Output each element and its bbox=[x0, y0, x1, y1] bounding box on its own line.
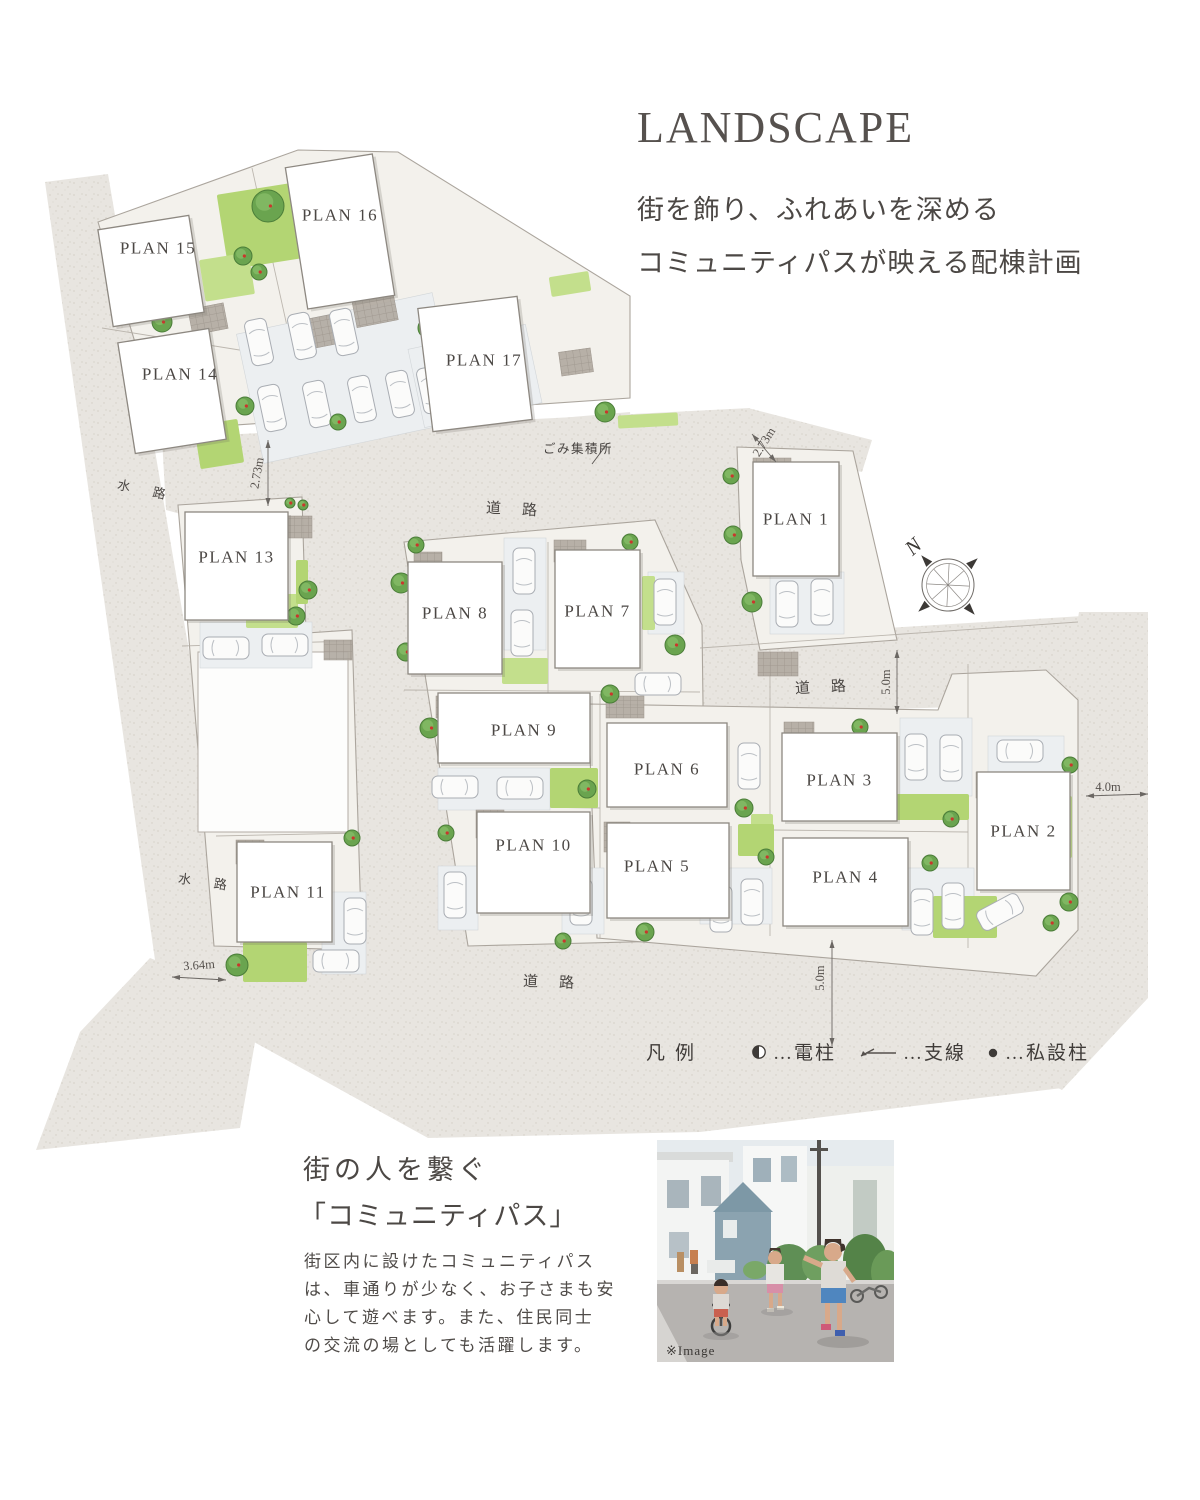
dimension-label: 5.0m bbox=[813, 965, 827, 991]
tree-center-dot bbox=[744, 806, 747, 809]
tree bbox=[252, 190, 284, 222]
tree-center-dot bbox=[1051, 921, 1054, 924]
car bbox=[262, 634, 308, 656]
grass-patch bbox=[243, 942, 307, 982]
car bbox=[738, 743, 760, 789]
car bbox=[997, 740, 1043, 762]
plan-building bbox=[118, 328, 230, 456]
tree-center-dot bbox=[733, 533, 736, 536]
tree-center-dot bbox=[338, 420, 341, 423]
car-body bbox=[344, 898, 366, 944]
tree bbox=[724, 526, 742, 544]
tree bbox=[420, 718, 440, 738]
private-pole-icon bbox=[986, 1045, 1000, 1059]
legend-label: …電柱 bbox=[773, 1038, 836, 1065]
car bbox=[940, 735, 962, 781]
community-body-line: は、車通りが少なく、お子さまも安 bbox=[304, 1276, 616, 1304]
tree bbox=[723, 468, 739, 484]
car bbox=[635, 673, 681, 695]
car bbox=[432, 776, 478, 798]
tree bbox=[285, 498, 295, 508]
tree-center-dot bbox=[675, 643, 678, 646]
car-body bbox=[905, 734, 927, 780]
tree bbox=[601, 685, 619, 703]
car bbox=[444, 872, 466, 918]
tree bbox=[665, 635, 685, 655]
tree-center-dot bbox=[587, 787, 590, 790]
legend-item-private-pole: …私設柱 bbox=[986, 1038, 1089, 1065]
building-footprint bbox=[98, 215, 204, 326]
tree-center-dot bbox=[645, 930, 648, 933]
car bbox=[776, 581, 798, 627]
tree bbox=[1043, 915, 1059, 931]
plan-label: PLAN 17 bbox=[446, 351, 522, 370]
plan-label: PLAN 10 bbox=[495, 836, 571, 855]
road-label: 道 路 bbox=[523, 973, 578, 992]
car-body bbox=[942, 883, 964, 929]
tree bbox=[1060, 893, 1078, 911]
tree bbox=[943, 811, 959, 827]
plan-building bbox=[185, 512, 291, 623]
plan-label: PLAN 13 bbox=[198, 548, 274, 567]
tree-center-dot bbox=[752, 600, 755, 603]
tree-center-dot bbox=[269, 204, 272, 207]
tree bbox=[1062, 757, 1078, 773]
car-body bbox=[940, 735, 962, 781]
tree bbox=[742, 592, 762, 612]
plan-label: PLAN 2 bbox=[990, 822, 1056, 841]
dimension-label: 3.64m bbox=[183, 957, 216, 973]
legend-label: …私設柱 bbox=[1005, 1038, 1089, 1065]
tree bbox=[298, 500, 308, 510]
community-heading-line2: 「コミュニティパス」 bbox=[299, 1194, 577, 1233]
plan-label: PLAN 16 bbox=[302, 206, 378, 225]
photo-illustration bbox=[657, 1140, 894, 1362]
plan-label: PLAN 9 bbox=[491, 721, 557, 740]
car bbox=[942, 883, 964, 929]
car bbox=[741, 879, 763, 925]
car-body bbox=[776, 581, 798, 627]
building-footprint bbox=[477, 812, 590, 913]
car bbox=[203, 637, 249, 659]
legend-label: …支線 bbox=[903, 1038, 966, 1065]
car-body bbox=[497, 777, 543, 799]
tree bbox=[236, 397, 254, 415]
tree bbox=[299, 581, 317, 599]
tree-center-dot bbox=[296, 614, 299, 617]
plan-label: PLAN 6 bbox=[634, 760, 700, 779]
car-body bbox=[911, 889, 933, 935]
tree-highlight bbox=[256, 193, 274, 211]
plan-label: PLAN 8 bbox=[422, 604, 488, 623]
tree-center-dot bbox=[605, 410, 608, 413]
tree-center-dot bbox=[951, 817, 954, 820]
tree-center-dot bbox=[1069, 900, 1072, 903]
tree-center-dot bbox=[416, 543, 419, 546]
plan-label: PLAN 14 bbox=[142, 365, 218, 384]
vacant-plot bbox=[198, 652, 348, 832]
community-body: 街区内に設けたコミュニティパス は、車通りが少なく、お子さまも安 心して遊べます… bbox=[304, 1248, 616, 1360]
car-body bbox=[313, 950, 359, 972]
tree-center-dot bbox=[308, 588, 311, 591]
tree bbox=[344, 830, 360, 846]
tree-center-dot bbox=[259, 270, 262, 273]
tree-center-dot bbox=[731, 474, 734, 477]
car bbox=[313, 950, 359, 972]
tree-center-dot bbox=[245, 404, 248, 407]
tree-center-dot bbox=[243, 254, 246, 257]
building-footprint bbox=[118, 328, 226, 453]
car-body bbox=[635, 673, 681, 695]
tree bbox=[330, 414, 346, 430]
tree bbox=[622, 534, 638, 550]
paving-pad bbox=[324, 640, 352, 660]
car bbox=[511, 610, 533, 656]
plan-label: PLAN 7 bbox=[564, 602, 630, 621]
tree-center-dot bbox=[430, 726, 433, 729]
tree bbox=[251, 264, 267, 280]
car-body bbox=[203, 637, 249, 659]
legend-item-utility-pole: …電柱 bbox=[750, 1038, 836, 1065]
car-body bbox=[511, 610, 533, 656]
car-body bbox=[738, 743, 760, 789]
tree bbox=[758, 849, 774, 865]
car-body bbox=[654, 579, 676, 625]
road-label: 道 路 bbox=[795, 678, 850, 698]
tree bbox=[595, 402, 615, 422]
tree bbox=[735, 799, 753, 817]
tree-center-dot bbox=[766, 855, 769, 858]
dimension-label: 4.0m bbox=[1095, 780, 1121, 794]
car-body bbox=[262, 634, 308, 656]
plan-label: PLAN 1 bbox=[763, 510, 829, 529]
community-photo: ※Image bbox=[657, 1140, 894, 1362]
plan-label: PLAN 15 bbox=[120, 239, 196, 258]
tree-center-dot bbox=[610, 692, 613, 695]
tree bbox=[226, 954, 248, 976]
compass: N bbox=[875, 511, 1004, 642]
tree-center-dot bbox=[930, 861, 933, 864]
tree-center-dot bbox=[860, 725, 863, 728]
paving-pad bbox=[558, 348, 593, 376]
legend-item-guy-wire: …支線 bbox=[858, 1038, 966, 1065]
car-body bbox=[444, 872, 466, 918]
community-heading-line1: 街の人を繋ぐ bbox=[303, 1148, 489, 1187]
photo-caption: ※Image bbox=[666, 1343, 715, 1359]
car bbox=[811, 579, 833, 625]
car-body bbox=[741, 879, 763, 925]
tree bbox=[578, 780, 596, 798]
tree bbox=[408, 537, 424, 553]
tree-center-dot bbox=[446, 831, 449, 834]
dimension-label: 5.0m bbox=[879, 669, 893, 695]
compass-arrowhead bbox=[966, 555, 980, 569]
grass-patch bbox=[502, 658, 548, 684]
tree bbox=[922, 855, 938, 871]
landscape-page: LANDSCAPE 街を飾り、ふれあいを深める コミュニティパスが映える配棟計画… bbox=[0, 0, 1200, 1500]
car-body bbox=[997, 740, 1043, 762]
grass-patch bbox=[642, 576, 655, 630]
tree bbox=[636, 923, 654, 941]
tree bbox=[438, 825, 454, 841]
tree-center-dot bbox=[237, 963, 240, 966]
paving-pad bbox=[758, 652, 798, 676]
car bbox=[905, 734, 927, 780]
tree-center-dot bbox=[401, 581, 404, 584]
utility-pole-icon bbox=[750, 1043, 768, 1061]
car bbox=[344, 898, 366, 944]
community-body-line: 心して遊べます。また、住民同士 bbox=[304, 1304, 616, 1332]
plan-label: PLAN 4 bbox=[812, 868, 878, 887]
car bbox=[497, 777, 543, 799]
guy-wire-icon bbox=[858, 1044, 898, 1060]
community-body-line: 街区内に設けたコミュニティパス bbox=[304, 1248, 616, 1276]
compass-arrowhead bbox=[916, 601, 930, 615]
road-label: 道 路 bbox=[486, 500, 541, 520]
car bbox=[911, 889, 933, 935]
community-body-line: の交流の場としても活躍します。 bbox=[304, 1332, 616, 1360]
plan-building bbox=[98, 215, 208, 330]
tree bbox=[555, 933, 571, 949]
tree-center-dot bbox=[630, 540, 633, 543]
map-legend: 凡例 …電柱 …支線 …私設柱 bbox=[646, 1038, 1089, 1065]
plan-building bbox=[477, 812, 593, 916]
plan-label: PLAN 5 bbox=[624, 857, 690, 876]
tree-center-dot bbox=[1070, 763, 1073, 766]
garbage-station-label: ごみ集積所 bbox=[543, 441, 613, 456]
plan-label: PLAN 3 bbox=[806, 771, 872, 790]
tree-center-dot bbox=[302, 503, 305, 506]
compass-arrowhead bbox=[964, 603, 978, 617]
legend-title: 凡例 bbox=[646, 1038, 704, 1065]
tree-center-dot bbox=[563, 939, 566, 942]
tree bbox=[234, 247, 252, 265]
car-body bbox=[432, 776, 478, 798]
car bbox=[654, 579, 676, 625]
tree-center-dot bbox=[289, 501, 292, 504]
car-body bbox=[513, 548, 535, 594]
car bbox=[513, 548, 535, 594]
tree-center-dot bbox=[352, 836, 355, 839]
plan-label: PLAN 11 bbox=[250, 883, 326, 902]
car-body bbox=[811, 579, 833, 625]
